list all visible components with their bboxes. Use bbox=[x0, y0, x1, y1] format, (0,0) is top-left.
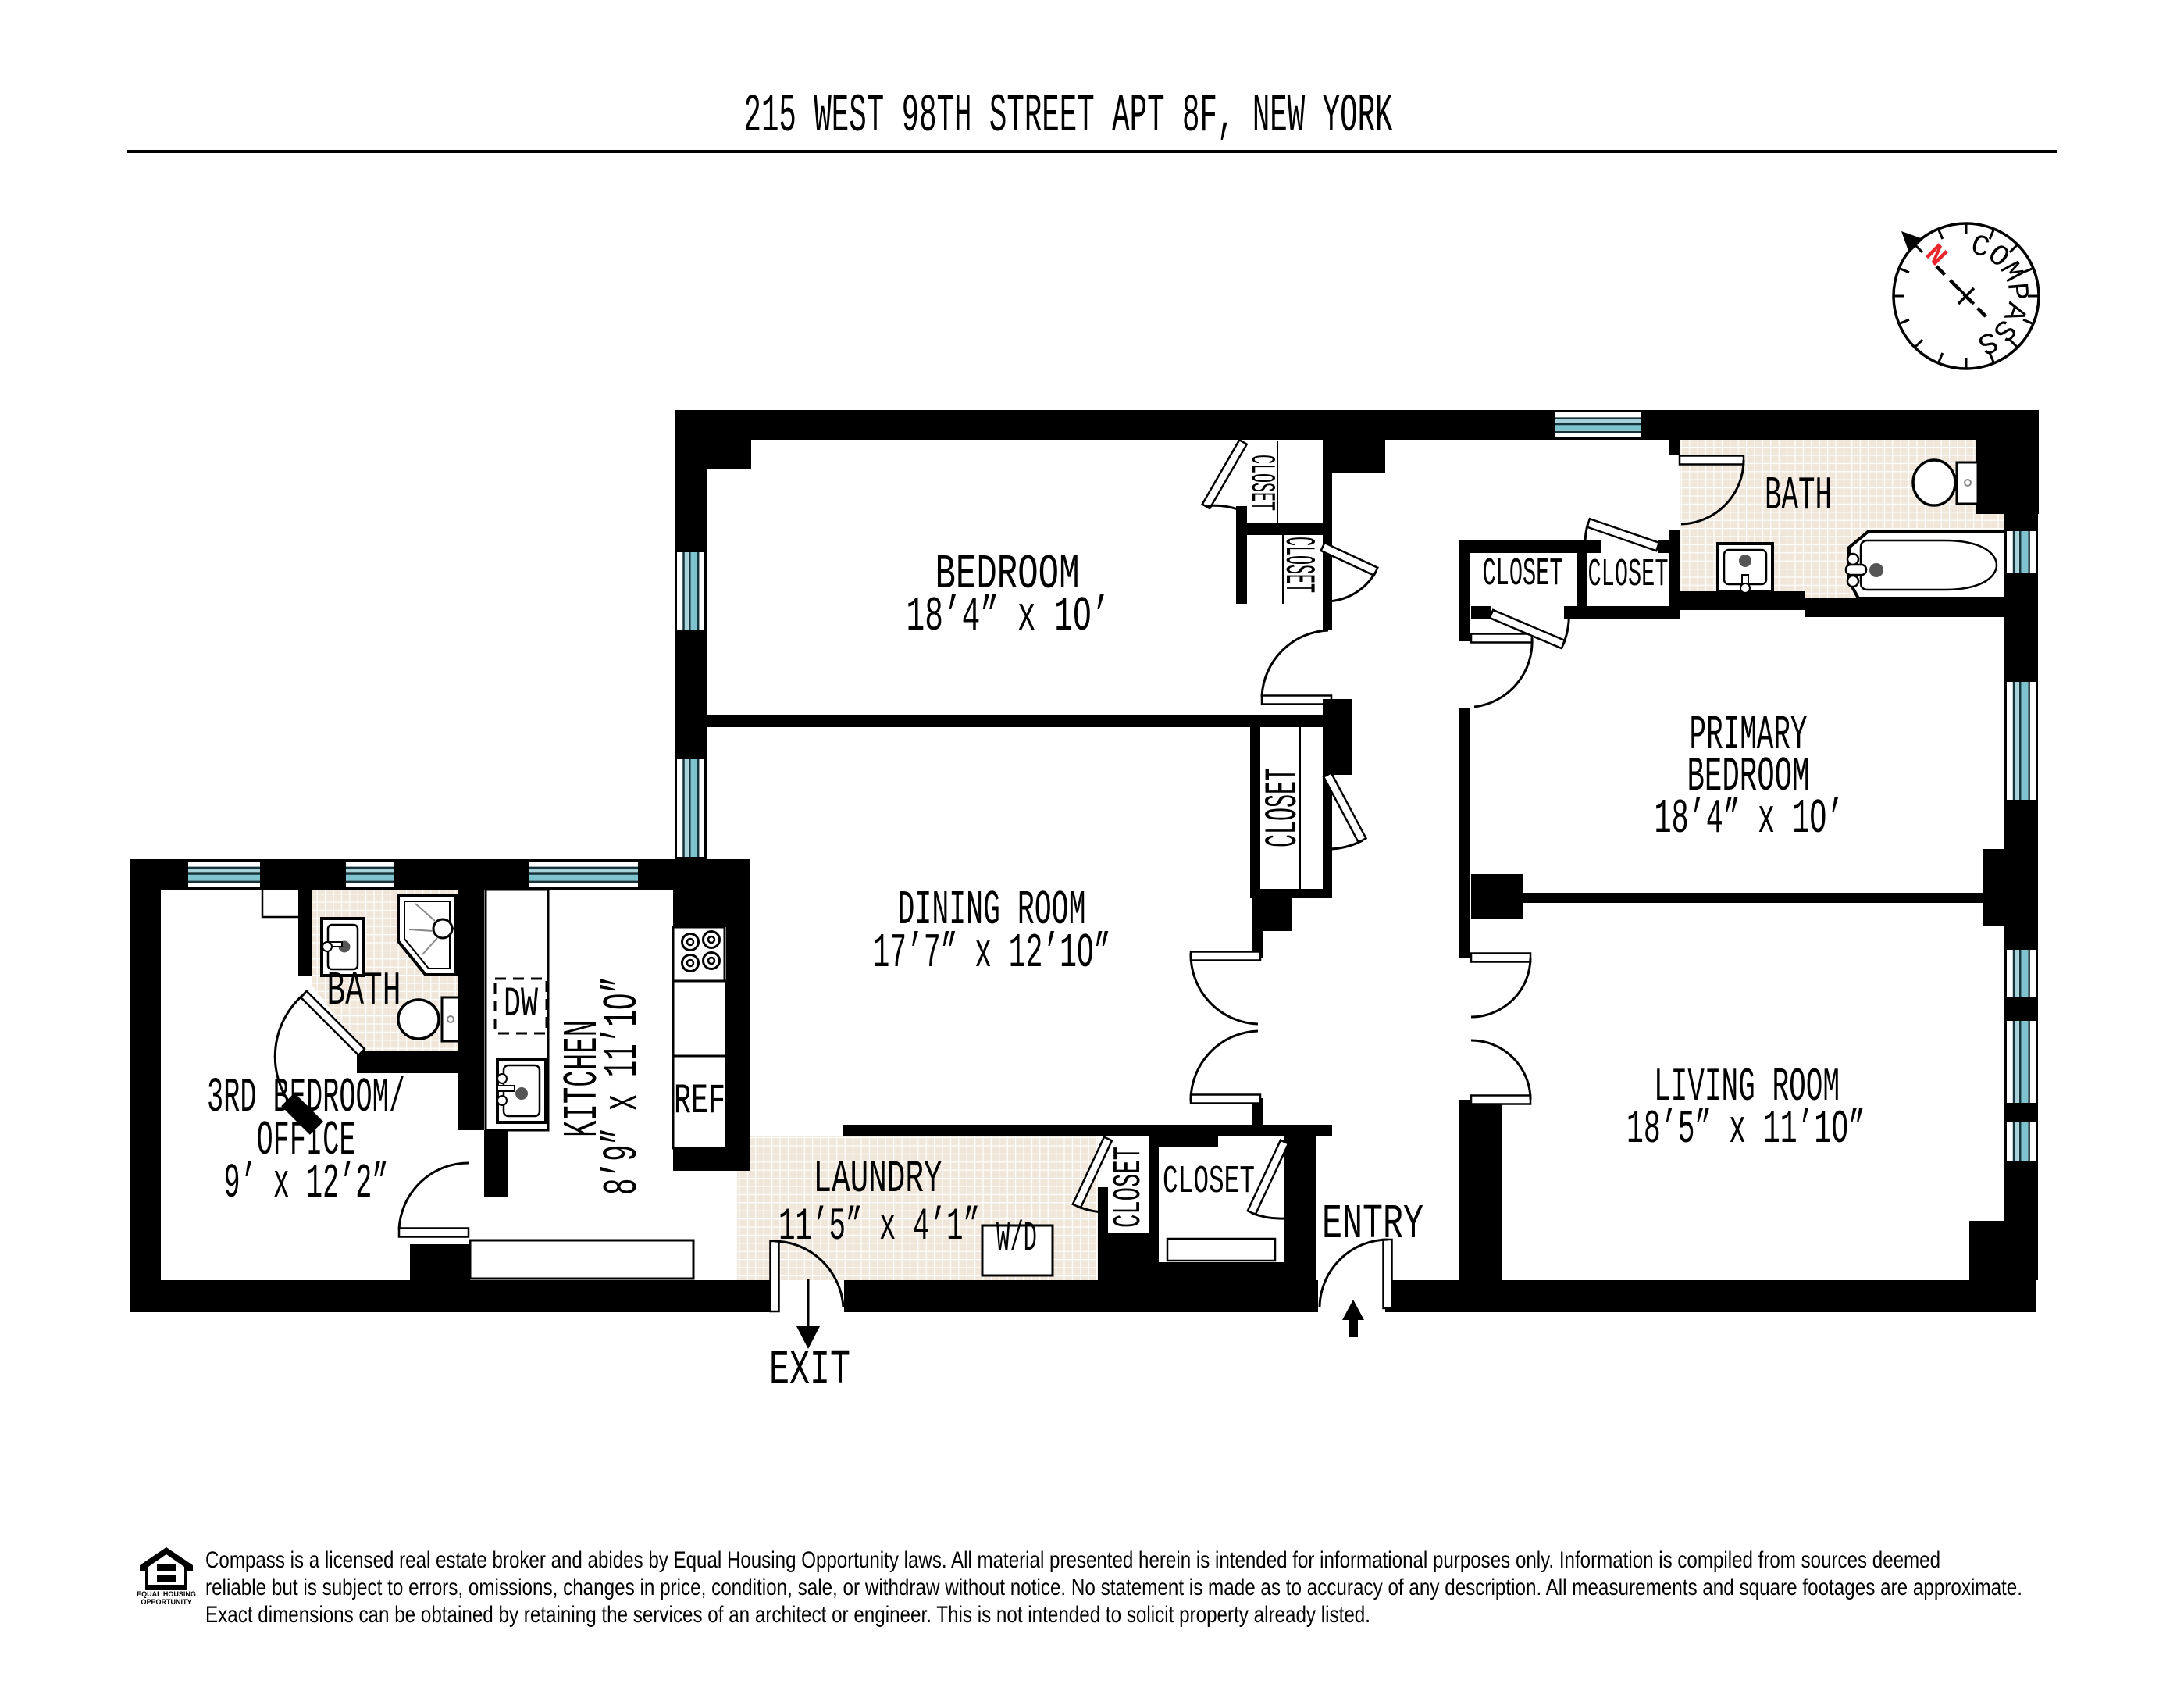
svg-text:CLOSET: CLOSET bbox=[1259, 768, 1309, 847]
svg-text:11’5” x 4’1”: 11’5” x 4’1” bbox=[778, 1202, 980, 1253]
svg-text:18’5” x 11’1O”: 18’5” x 11’1O” bbox=[1626, 1104, 1865, 1157]
svg-text:OPPORTUNITY: OPPORTUNITY bbox=[141, 1598, 191, 1606]
svg-text:BATH: BATH bbox=[327, 965, 401, 1019]
svg-text:reliable but is subject to err: reliable but is subject to errors, omiss… bbox=[205, 1575, 2022, 1600]
svg-text:DW: DW bbox=[504, 981, 538, 1029]
svg-text:CLOSET: CLOSET bbox=[1242, 455, 1281, 511]
svg-text:EQUAL HOUSING: EQUAL HOUSING bbox=[137, 1590, 196, 1598]
svg-text:17’7” x 12’1O”: 17’7” x 12’1O” bbox=[873, 926, 1111, 981]
svg-text:8’9” x 11’1O”: 8’9” x 11’1O” bbox=[595, 976, 650, 1195]
svg-text:LAUNDRY: LAUNDRY bbox=[814, 1154, 942, 1205]
svg-text:Exact dimensions can be obtain: Exact dimensions can be obtained by reta… bbox=[205, 1602, 1370, 1628]
svg-text:18’4” x 1O’: 18’4” x 1O’ bbox=[1655, 791, 1844, 847]
svg-text:Compass is a licensed real est: Compass is a licensed real estate broker… bbox=[205, 1547, 1940, 1573]
svg-text:CLOSET: CLOSET bbox=[1163, 1160, 1255, 1204]
svg-text:CLOSET: CLOSET bbox=[1274, 537, 1321, 593]
svg-text:EXIT: EXIT bbox=[769, 1343, 850, 1398]
svg-text:REF: REF bbox=[674, 1078, 725, 1126]
svg-text:BATH: BATH bbox=[1765, 470, 1832, 523]
svg-text:CLOSET: CLOSET bbox=[1107, 1147, 1152, 1228]
svg-text:18’4” x 1O’: 18’4” x 1O’ bbox=[907, 589, 1110, 644]
svg-text:ENTRY: ENTRY bbox=[1322, 1197, 1423, 1252]
svg-text:CLOSET: CLOSET bbox=[1588, 553, 1669, 598]
svg-text:W/D: W/D bbox=[996, 1215, 1037, 1262]
svg-text:9’ x 12’2”: 9’ x 12’2” bbox=[224, 1156, 389, 1211]
svg-text:215 WEST 98TH STREET APT 8F, N: 215 WEST 98TH STREET APT 8F, NEW YORK bbox=[744, 86, 1393, 147]
svg-text:CLOSET: CLOSET bbox=[1483, 552, 1563, 597]
